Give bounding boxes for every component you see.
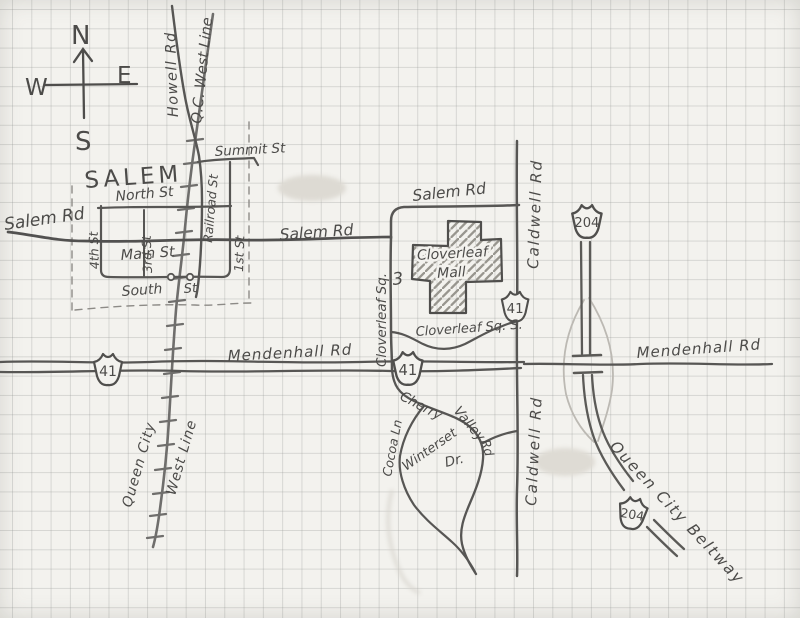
shield-204-beltway-north: 204	[572, 205, 601, 238]
shield-204-beltway-south: 204	[616, 496, 649, 531]
crossing-dot-west	[168, 274, 174, 280]
qc-west-line-label: Q.C. West Line	[189, 17, 216, 125]
hand-drawn-map: Cloverleaf Mall N S W E 41 41 41 204	[0, 0, 800, 618]
compass-west-label: W	[25, 75, 48, 101]
cherry-valley-rd-label-word1: Cherry	[397, 388, 445, 424]
railroad-st-label: Railroad St	[200, 173, 221, 244]
mall-label-line2: Mall	[437, 264, 466, 281]
compass-rose: N S W E	[25, 21, 137, 157]
shield-41-caldwell: 41	[502, 292, 529, 322]
cloverleaf-sq-label: Cloverleaf Sq.	[374, 273, 390, 367]
road-mendenhall-lower	[0, 368, 521, 372]
queen-city-west-line-label1: Queen City	[119, 420, 159, 509]
summit-st-label: Summit St	[214, 140, 286, 160]
road-caldwell-rd	[517, 141, 518, 576]
compass-east-label: E	[117, 63, 132, 89]
caldwell-rd-north-label: Caldwell Rd	[524, 159, 546, 269]
first-st-label: 1st St	[231, 234, 247, 272]
compass-south-label: S	[75, 127, 92, 157]
beltway-south-lanes	[583, 375, 633, 490]
road-mendenhall-east	[524, 363, 772, 364]
shield-41-cherry-number: 41	[399, 362, 418, 379]
boundary-south	[75, 303, 251, 310]
shield-41-mendenhall-west: 41	[94, 354, 122, 385]
salem-rd-mid-label: Salem Rd	[279, 221, 354, 244]
crossing-dot-east	[187, 274, 193, 280]
shield-41-caldwell-number: 41	[507, 302, 524, 317]
salem-rd-west-label: Salem Rd	[3, 204, 86, 235]
mendenhall-rd-east-label: Mendenhall Rd	[636, 335, 762, 362]
salem-rd-northeast-label: Salem Rd	[412, 179, 487, 205]
winterset-dr-label-word2: Dr.	[443, 451, 465, 471]
caldwell-rd-south-label: Caldwell Rd	[522, 396, 546, 507]
cloverleaf-sq-s-label: Cloverleaf Sq. S.	[415, 318, 523, 340]
howell-rd-label: Howell Rd	[163, 31, 182, 118]
shield-204-north-number: 204	[574, 216, 599, 231]
shield-41-west-number: 41	[99, 364, 117, 380]
road-cloverleaf-sq	[391, 238, 392, 369]
map-drawing: Cloverleaf Mall N S W E 41 41 41 204	[0, 0, 800, 618]
cherry-valley-rd-label-word3: Rd	[478, 438, 497, 458]
shield-41-cherry-valley: 41	[393, 352, 422, 385]
third-st-label: 3rd St	[139, 234, 155, 273]
south-st-label-word1: South	[121, 281, 163, 300]
fourth-st-label: 4th St	[86, 230, 102, 269]
compass-north-label: N	[71, 21, 90, 51]
cloverleaf-mall: Cloverleaf Mall	[412, 221, 502, 313]
road-labels: Salem Rd Salem Rd Salem Rd SALEM Summit …	[3, 17, 762, 588]
block-number-label: 3	[391, 269, 404, 290]
south-st-label-word2: St	[183, 281, 198, 297]
